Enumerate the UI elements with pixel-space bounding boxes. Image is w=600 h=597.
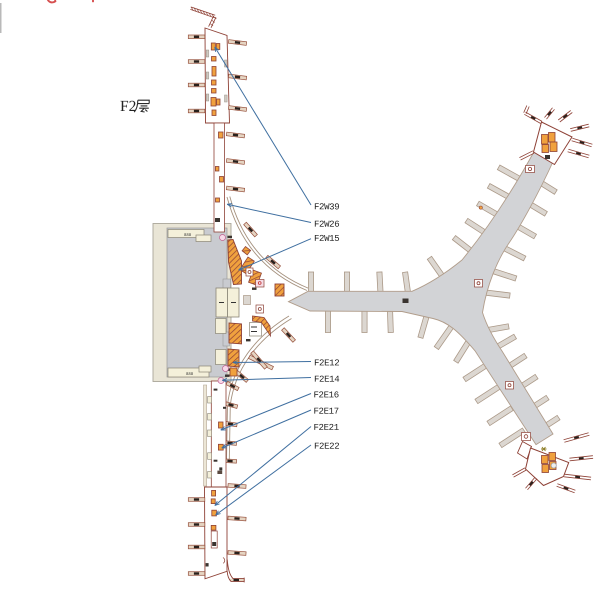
svg-text:F2W26: F2W26 bbox=[314, 220, 339, 230]
svg-text:888: 888 bbox=[184, 234, 192, 238]
svg-text:F2E16: F2E16 bbox=[313, 390, 338, 400]
svg-text:F2: F2 bbox=[120, 98, 136, 115]
svg-text:F2E21: F2E21 bbox=[313, 423, 338, 433]
svg-text:F2E17: F2E17 bbox=[313, 407, 338, 417]
svg-text:888: 888 bbox=[186, 373, 194, 377]
svg-text:F2E22: F2E22 bbox=[314, 442, 339, 452]
svg-text:F2E12: F2E12 bbox=[314, 358, 339, 368]
svg-text:F2E14: F2E14 bbox=[314, 375, 339, 385]
svg-text:F2W39: F2W39 bbox=[314, 202, 339, 212]
svg-text:F2W15: F2W15 bbox=[314, 234, 339, 244]
